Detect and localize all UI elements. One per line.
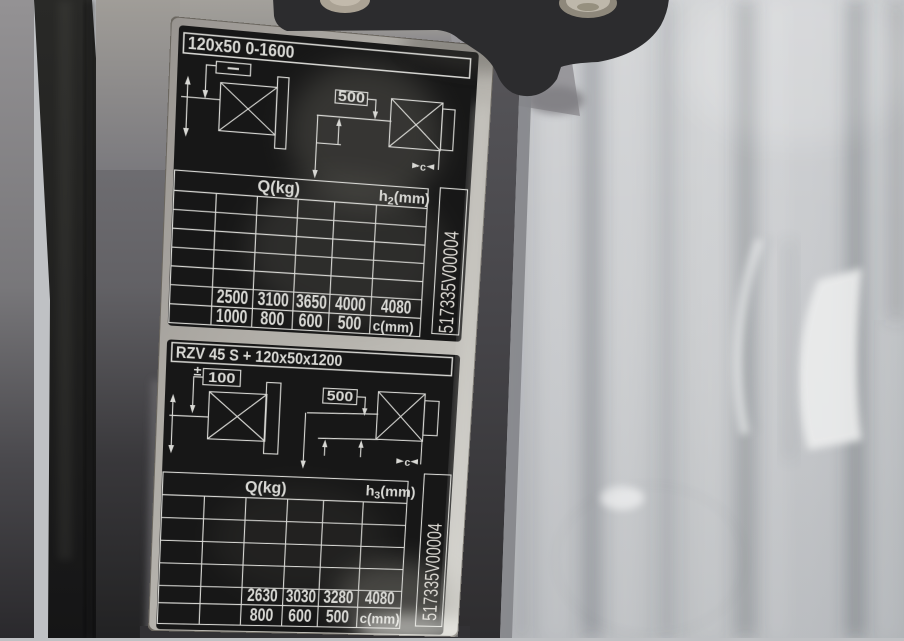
svg-text:2630: 2630 xyxy=(247,586,278,606)
svg-text:3030: 3030 xyxy=(285,587,316,607)
svg-text:500: 500 xyxy=(337,88,365,106)
svg-text:1000: 1000 xyxy=(216,306,248,328)
svg-text:4080: 4080 xyxy=(380,297,411,319)
svg-text:Q(kg): Q(kg) xyxy=(257,176,300,198)
svg-text:500: 500 xyxy=(325,607,349,627)
svg-text:Q(kg): Q(kg) xyxy=(245,477,287,497)
svg-text:c: c xyxy=(420,161,427,174)
svg-text:c: c xyxy=(404,457,411,469)
svg-text:600: 600 xyxy=(298,311,323,333)
svg-text:500: 500 xyxy=(337,313,362,334)
svg-text:800: 800 xyxy=(249,606,273,626)
svg-text:3280: 3280 xyxy=(323,588,354,608)
svg-text:500: 500 xyxy=(326,388,353,405)
svg-text:c(mm): c(mm) xyxy=(372,319,414,337)
svg-text:800: 800 xyxy=(260,308,285,330)
svg-text:600: 600 xyxy=(288,607,312,627)
svg-text:100: 100 xyxy=(208,370,236,387)
svg-text:4080: 4080 xyxy=(364,589,395,609)
